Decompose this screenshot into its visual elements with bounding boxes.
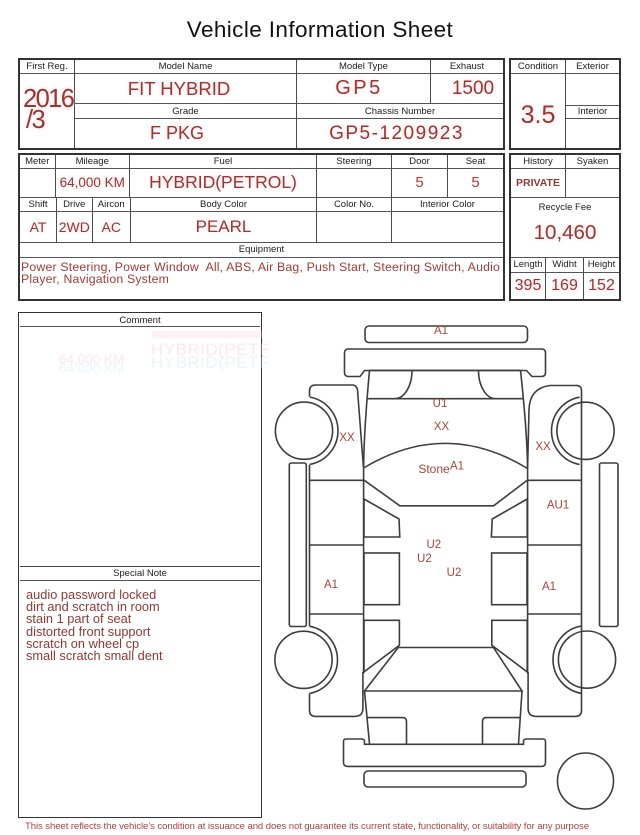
svg-text:A1: A1	[542, 581, 556, 593]
svg-text:A1: A1	[324, 579, 338, 591]
svg-text:XX: XX	[535, 441, 551, 453]
svg-text:U2: U2	[447, 567, 462, 579]
svg-text:XX: XX	[339, 432, 355, 444]
svg-text:Stone: Stone	[418, 462, 450, 476]
svg-text:U2: U2	[417, 553, 432, 565]
svg-text:A1: A1	[450, 461, 464, 473]
svg-text:U1: U1	[433, 398, 448, 410]
svg-text:U2: U2	[426, 539, 441, 551]
svg-text:A1: A1	[434, 325, 448, 337]
svg-text:AU1: AU1	[547, 500, 569, 512]
svg-text:XX: XX	[434, 421, 450, 433]
